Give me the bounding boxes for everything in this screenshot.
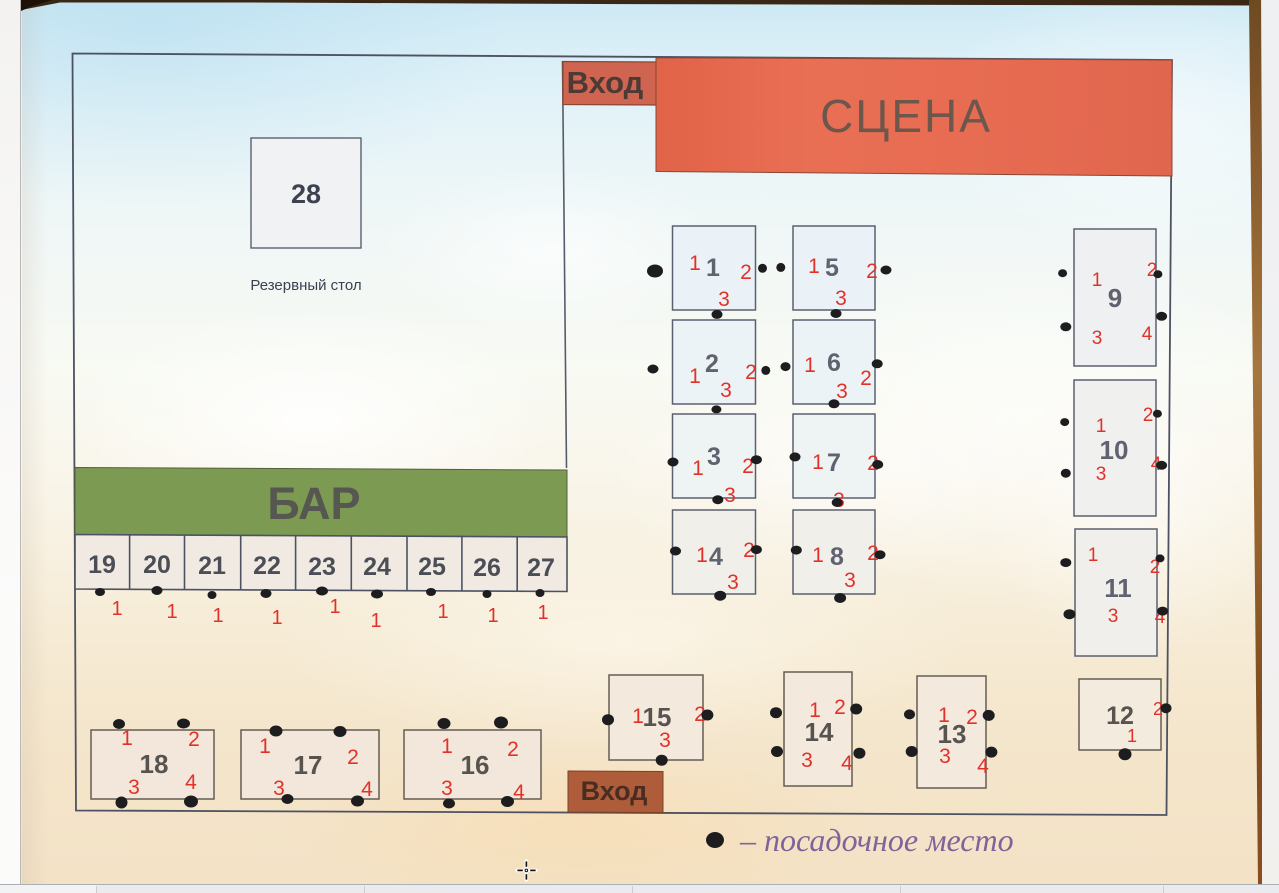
- svg-text:1: 1: [259, 735, 271, 758]
- svg-text:4: 4: [185, 771, 197, 794]
- svg-text:3: 3: [720, 379, 732, 402]
- svg-text:1: 1: [809, 699, 821, 722]
- svg-text:27: 27: [527, 554, 555, 582]
- svg-text:– посадочное место: – посадочное место: [739, 822, 1014, 858]
- svg-text:1: 1: [692, 457, 704, 480]
- svg-text:26: 26: [473, 554, 501, 582]
- svg-text:1: 1: [706, 254, 720, 282]
- svg-text:3: 3: [939, 745, 951, 768]
- svg-text:1: 1: [1088, 545, 1099, 566]
- svg-text:2: 2: [1147, 260, 1158, 281]
- svg-text:1: 1: [808, 255, 820, 278]
- svg-text:17: 17: [294, 750, 323, 780]
- svg-text:1: 1: [487, 605, 498, 627]
- svg-text:4: 4: [513, 781, 525, 804]
- svg-text:20: 20: [143, 551, 171, 579]
- svg-text:1: 1: [1092, 270, 1103, 291]
- svg-text:1: 1: [537, 602, 548, 624]
- svg-text:2: 2: [507, 738, 519, 761]
- svg-text:28: 28: [291, 179, 321, 209]
- svg-text:3: 3: [128, 776, 140, 799]
- svg-text:1: 1: [437, 601, 448, 623]
- svg-text:18: 18: [140, 749, 169, 779]
- svg-text:1: 1: [370, 610, 381, 632]
- svg-text:1: 1: [329, 596, 340, 618]
- svg-text:2: 2: [866, 260, 878, 283]
- svg-text:3: 3: [835, 287, 847, 310]
- svg-text:1: 1: [812, 544, 824, 567]
- svg-text:24: 24: [363, 553, 391, 581]
- svg-text:Вход: Вход: [581, 776, 648, 806]
- svg-text:1: 1: [804, 354, 816, 377]
- svg-text:9: 9: [1108, 283, 1122, 313]
- svg-text:15: 15: [643, 702, 672, 732]
- svg-text:2: 2: [705, 350, 719, 378]
- svg-text:3: 3: [727, 571, 739, 594]
- svg-text:3: 3: [441, 777, 453, 800]
- svg-text:5: 5: [825, 254, 839, 282]
- svg-text:2: 2: [966, 706, 978, 729]
- svg-text:Вход: Вход: [567, 65, 644, 100]
- svg-text:2: 2: [860, 367, 872, 390]
- svg-text:19: 19: [88, 551, 116, 579]
- svg-text:2: 2: [740, 261, 752, 284]
- svg-text:3: 3: [718, 288, 730, 311]
- svg-text:1: 1: [812, 451, 824, 474]
- svg-text:2: 2: [188, 728, 200, 751]
- svg-text:3: 3: [659, 729, 671, 752]
- svg-text:1: 1: [696, 544, 708, 567]
- svg-text:23: 23: [308, 553, 336, 581]
- svg-text:1: 1: [689, 365, 701, 388]
- svg-text:1: 1: [632, 705, 644, 728]
- svg-text:2: 2: [834, 696, 846, 719]
- svg-text:2: 2: [745, 361, 757, 384]
- svg-text:4: 4: [361, 778, 373, 801]
- svg-text:3: 3: [1092, 328, 1103, 349]
- svg-text:3: 3: [1096, 464, 1107, 485]
- svg-text:4: 4: [1142, 324, 1153, 345]
- svg-text:1: 1: [111, 598, 122, 620]
- svg-text:Резервный стол: Резервный стол: [250, 277, 361, 294]
- svg-text:1: 1: [689, 252, 701, 275]
- svg-text:БАР: БАР: [267, 478, 360, 529]
- svg-text:16: 16: [461, 750, 490, 780]
- svg-text:4: 4: [709, 543, 723, 571]
- svg-text:3: 3: [836, 380, 848, 403]
- svg-text:1: 1: [441, 735, 453, 758]
- svg-text:1: 1: [938, 704, 950, 727]
- svg-text:1: 1: [1096, 416, 1107, 437]
- svg-text:21: 21: [198, 552, 226, 580]
- svg-text:1: 1: [271, 607, 282, 629]
- svg-text:3: 3: [844, 569, 856, 592]
- svg-text:22: 22: [253, 552, 281, 580]
- svg-text:4: 4: [977, 755, 989, 778]
- svg-text:4: 4: [841, 752, 853, 775]
- svg-text:1: 1: [166, 601, 177, 623]
- svg-text:3: 3: [1108, 606, 1119, 627]
- svg-text:1: 1: [121, 727, 133, 750]
- svg-text:1: 1: [212, 605, 223, 627]
- svg-text:7: 7: [827, 449, 841, 477]
- svg-text:11: 11: [1104, 573, 1132, 603]
- svg-text:3: 3: [707, 443, 721, 471]
- svg-text:1: 1: [1127, 726, 1137, 746]
- svg-text:2: 2: [347, 746, 359, 769]
- svg-text:СЦЕНА: СЦЕНА: [820, 90, 992, 142]
- svg-text:8: 8: [830, 543, 844, 571]
- svg-text:6: 6: [827, 349, 841, 377]
- svg-text:10: 10: [1100, 435, 1129, 465]
- svg-text:25: 25: [418, 553, 446, 581]
- svg-text:3: 3: [724, 484, 736, 507]
- svg-text:2: 2: [1143, 405, 1154, 426]
- svg-text:3: 3: [801, 749, 813, 772]
